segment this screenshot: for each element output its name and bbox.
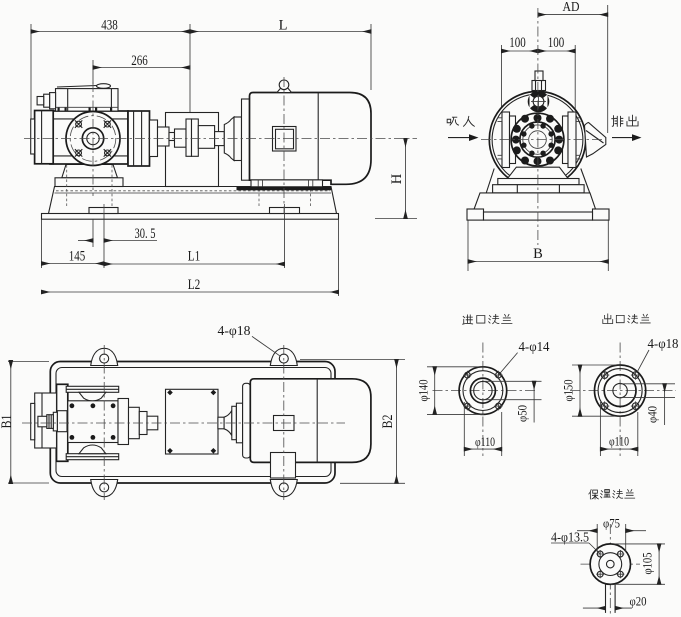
svg-text:φ40: φ40 (645, 406, 660, 423)
svg-text:φ140: φ140 (416, 380, 431, 402)
svg-text:B2: B2 (380, 415, 396, 429)
svg-text:φ20: φ20 (630, 594, 647, 609)
svg-text:30. 5: 30. 5 (135, 226, 156, 242)
svg-text:φ75: φ75 (603, 516, 620, 531)
svg-text:φ110: φ110 (475, 435, 495, 449)
svg-text:φ150: φ150 (561, 380, 576, 402)
svg-text:L: L (279, 18, 288, 34)
svg-text:4-φ18: 4-φ18 (648, 336, 679, 351)
svg-text:B1: B1 (0, 415, 15, 429)
svg-text:φ110: φ110 (609, 435, 629, 449)
svg-text:4-φ18: 4-φ18 (218, 323, 251, 338)
svg-text:φ105: φ105 (640, 553, 655, 575)
svg-text:4-φ13.5: 4-φ13.5 (551, 530, 589, 545)
svg-text:H: H (389, 173, 405, 184)
svg-text:100: 100 (548, 35, 565, 51)
svg-text:4-φ14: 4-φ14 (519, 339, 550, 354)
svg-text:L2: L2 (188, 277, 201, 293)
svg-text:φ50: φ50 (515, 405, 530, 422)
svg-text:145: 145 (69, 249, 86, 265)
svg-text:100: 100 (509, 35, 526, 51)
svg-text:L1: L1 (188, 249, 201, 265)
svg-text:266: 266 (131, 53, 148, 69)
svg-text:438: 438 (101, 18, 118, 34)
svg-text:B: B (533, 246, 543, 262)
svg-text:AD: AD (563, 0, 580, 15)
